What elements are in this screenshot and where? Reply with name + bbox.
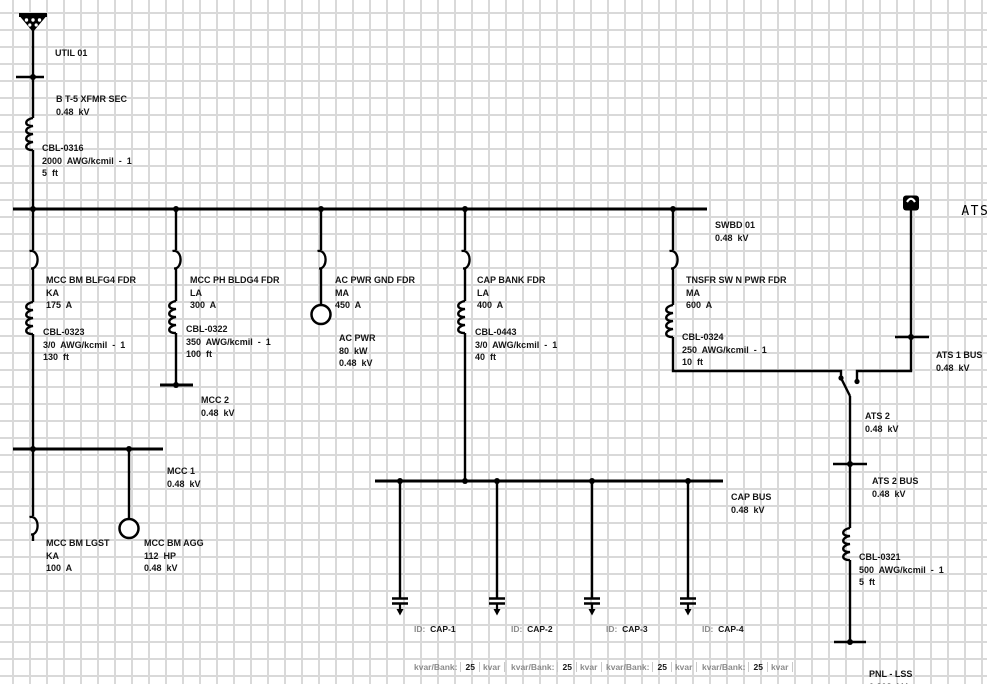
cap1-kvar-field[interactable]: 25 — [460, 662, 479, 672]
label-ats1-bus: ATS 1 BUS0.48 kV — [936, 324, 982, 399]
label-cbl0443: CBL-04433/0 AWG/kcmil - 140 ft — [475, 301, 557, 389]
cap4-kvar-field[interactable]: 25 — [748, 662, 767, 672]
label-pnl-lss: PNL - LSS0.208 kV — [869, 643, 912, 684]
capacitor-cap3-symbol[interactable] — [584, 481, 600, 616]
oneline-diagram-canvas: UTIL 01 B T-5 XFMR SEC0.48 kV CBL-031620… — [0, 0, 987, 684]
cable-cbl0324-symbol[interactable] — [666, 305, 673, 337]
breaker-ac-pwr-gnd-fdr[interactable] — [318, 251, 326, 269]
label-cap-bus: CAP BUS0.48 kV — [731, 466, 771, 541]
label-ats2: ATS 20.48 kV — [865, 385, 899, 460]
breaker-cap-bank-fdr[interactable] — [462, 251, 470, 269]
label-mcc1: MCC 10.48 kV — [167, 440, 201, 515]
cable-cbl0321-symbol[interactable] — [843, 528, 850, 560]
load-ac-pwr-symbol[interactable] — [312, 305, 331, 324]
label-cbl0321: CBL-0321500 AWG/kcmil - 15 ft — [859, 526, 944, 614]
label-ats2-bus: ATS 2 BUS0.48 kV — [872, 450, 918, 525]
capacitor-cap1-symbol[interactable] — [392, 481, 408, 616]
label-cap2: ID: CAP-2 kvar/Bank:25kvar — [511, 598, 602, 684]
breaker-tnsfr-sw-n-pwr-fdr[interactable] — [670, 251, 678, 269]
breaker-mcc-bm-lgst[interactable] — [30, 517, 38, 535]
breaker-mcc-ph-bldg4-fdr[interactable] — [173, 251, 181, 269]
cable-cbl0322-symbol[interactable] — [169, 301, 176, 333]
label-cbl0324: CBL-0324250 AWG/kcmil - 110 ft — [682, 306, 767, 394]
breaker-mcc-bm-blfg4-fdr[interactable] — [30, 251, 38, 269]
load-mcc-bm-agg-symbol[interactable] — [120, 519, 139, 538]
cable-cbl0323-symbol[interactable] — [26, 302, 33, 334]
label-cap3: ID: CAP-3 kvar/Bank:25kvar — [606, 598, 697, 684]
label-cbl0316: CBL-03162000 AWG/kcmil - 15 ft — [42, 117, 132, 205]
ats1-symbol[interactable] — [903, 196, 919, 211]
label-ac-pwr: AC PWR80 kW0.48 kV — [339, 307, 376, 395]
label-mcc-bm-agg: MCC BM AGG112 HP0.48 kV — [144, 512, 204, 600]
label-mcc2: MCC 20.48 kV — [201, 369, 235, 444]
utility-symbol[interactable] — [19, 13, 47, 32]
capacitor-cap2-symbol[interactable] — [489, 481, 505, 616]
cap3-kvar-field[interactable]: 25 — [652, 662, 671, 672]
label-cap4: ID: CAP-4 kvar/Bank:25kvar — [702, 598, 793, 684]
cable-cbl0316-symbol[interactable] — [26, 118, 33, 150]
cap2-kvar-field[interactable]: 25 — [557, 662, 576, 672]
label-mcc-bm-lgst: MCC BM LGSTKA100 A — [46, 512, 110, 600]
capacitor-cap4-symbol[interactable] — [680, 481, 696, 616]
label-cbl0323: CBL-03233/0 AWG/kcmil - 1130 ft — [43, 301, 125, 389]
line-ats1-drop[interactable] — [857, 210, 911, 380]
label-cap1: ID: CAP-1 kvar/Bank:25kvar — [414, 598, 505, 684]
label-ats1: ATS 1 — [924, 189, 987, 234]
cable-cbl0443-symbol[interactable] — [458, 301, 465, 333]
